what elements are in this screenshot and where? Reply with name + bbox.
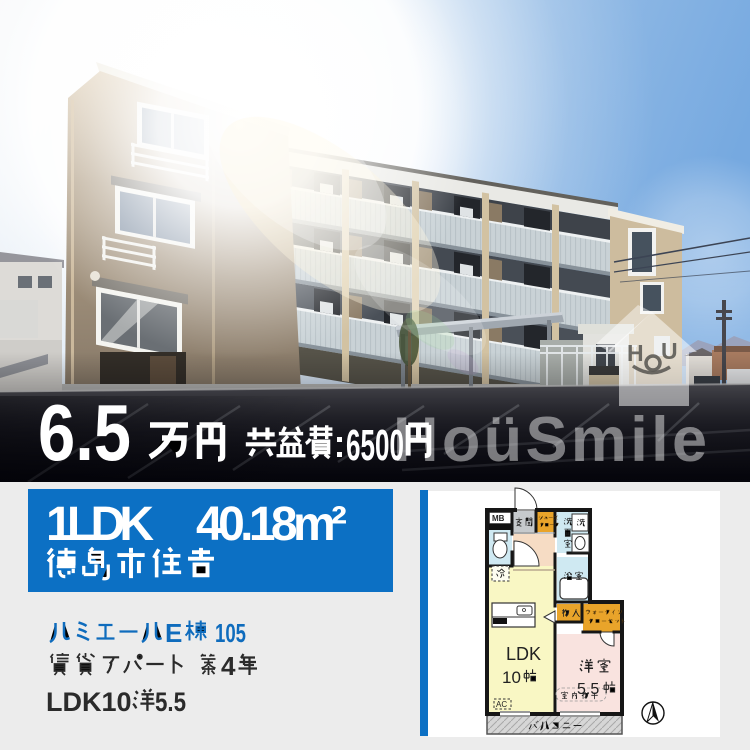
svg-text:5.5: 5.5 [155,687,186,717]
svg-text:H: H [627,340,644,366]
svg-text:MB: MB [492,514,505,523]
svg-text:U: U [661,338,678,364]
svg-text:AC: AC [496,700,507,709]
svg-text:E: E [165,618,182,648]
svg-text:105: 105 [215,618,246,648]
svg-text:1LDK: 1LDK [46,498,154,551]
svg-text:LDK: LDK [506,644,541,664]
svg-text:LDK10: LDK10 [46,687,132,717]
svg-text:4: 4 [221,651,236,681]
svg-text:40.18m²: 40.18m² [196,498,347,551]
svg-text:10: 10 [502,668,521,687]
svg-text:6.5: 6.5 [38,388,131,477]
svg-text:6500: 6500 [346,421,404,470]
